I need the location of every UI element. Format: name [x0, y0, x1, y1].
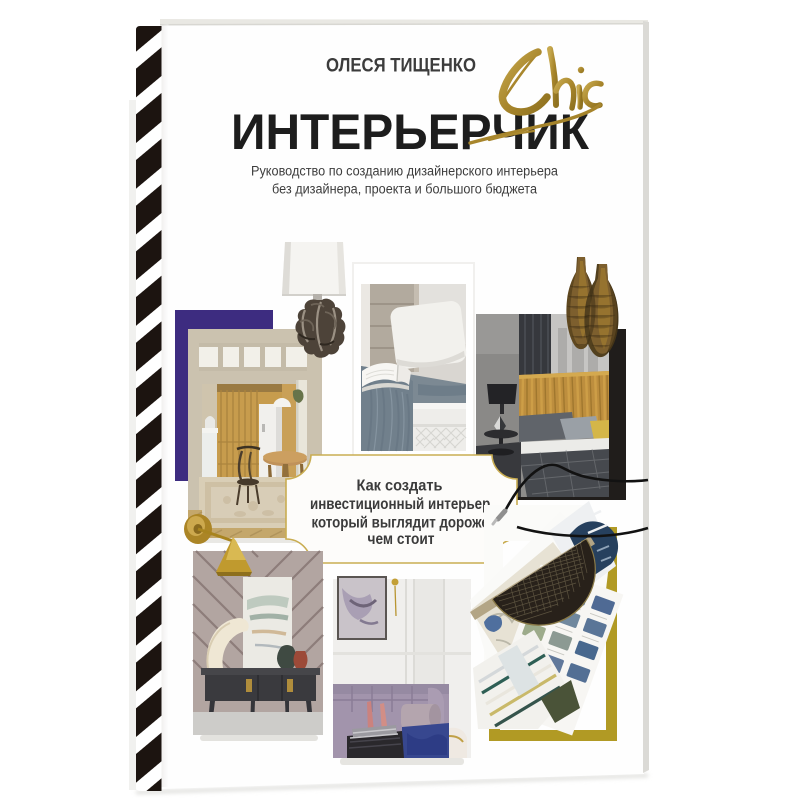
- svg-text:который выглядит дороже,: который выглядит дороже,: [312, 515, 493, 532]
- svg-text:чем стоит: чем стоит: [368, 531, 435, 548]
- svg-text:инвестиционный интерьер,: инвестиционный интерьер,: [310, 496, 494, 513]
- svg-text:ОЛЕСЯ ТИЩЕНКО: ОЛЕСЯ ТИЩЕНКО: [326, 55, 476, 77]
- svg-text:Руководство по созданию дизайн: Руководство по созданию дизайнерского ин…: [251, 164, 558, 179]
- svg-text:без дизайнера, проекта и больш: без дизайнера, проекта и большого бюджет…: [272, 182, 537, 197]
- svg-text:Как создать: Как создать: [357, 478, 443, 495]
- svg-text:ИНТЕРЬЕРЧИК: ИНТЕРЬЕРЧИК: [231, 104, 589, 160]
